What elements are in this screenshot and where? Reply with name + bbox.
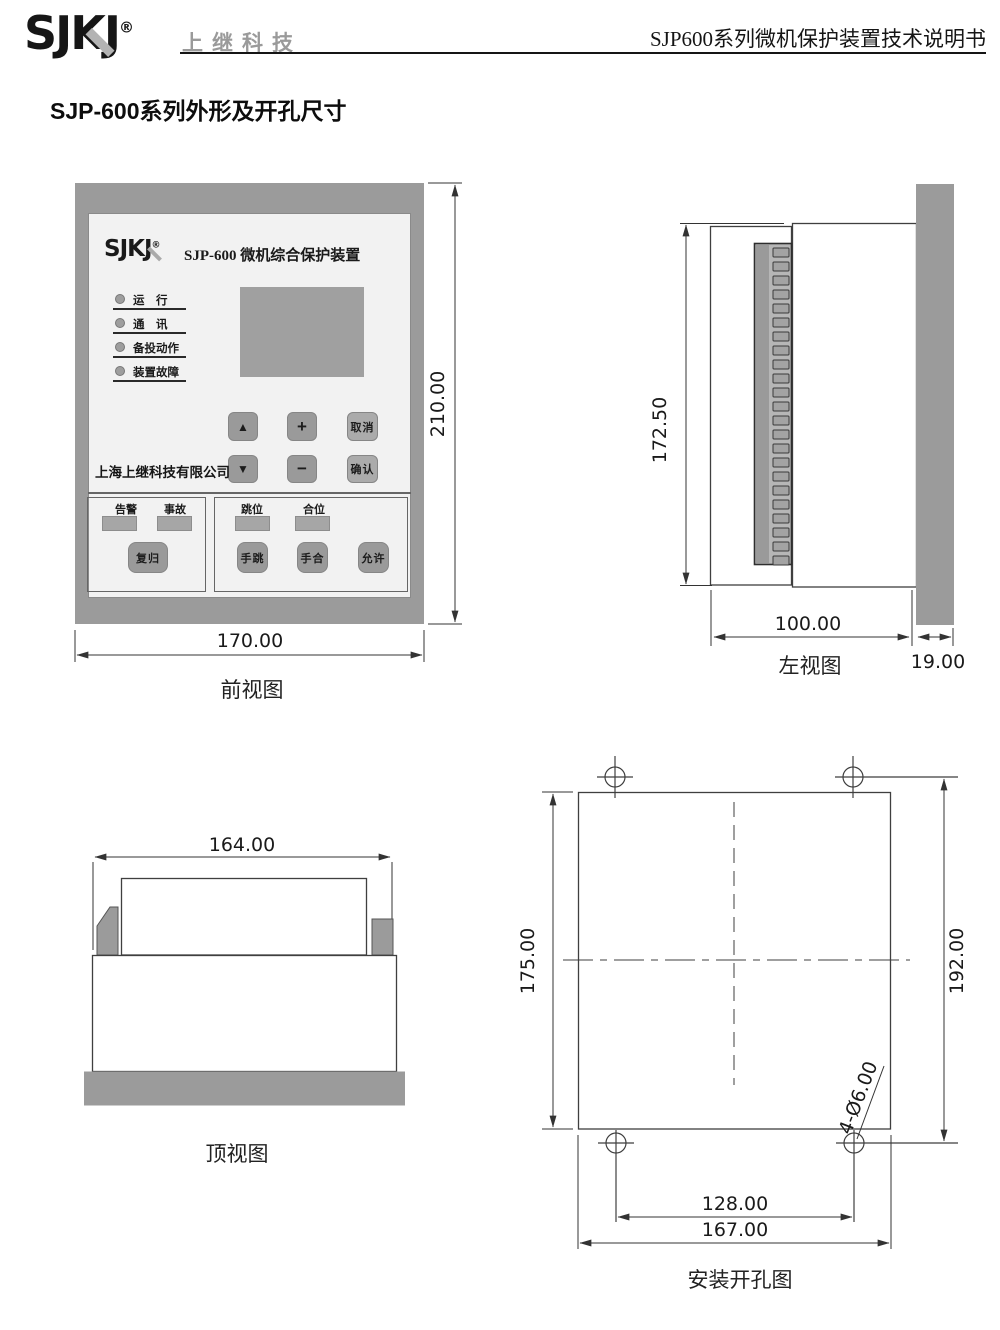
left-panel-thickness-dim: 19.00 [911, 651, 965, 673]
terminal-contacts [773, 248, 789, 565]
left-depth-dim: 100.00 [775, 613, 841, 635]
cutout-height-dim: 175.00 [517, 928, 539, 994]
terminal-contact [773, 332, 789, 341]
front-height-dim: 210.00 [427, 371, 449, 437]
terminal-contact [773, 472, 789, 481]
terminal-contact [773, 458, 789, 467]
top-view-drawing: 164.00 [84, 834, 405, 1106]
top-view-front-panel [84, 1072, 405, 1106]
left-view-drawing: 172.50 100.00 19.00 [649, 184, 965, 673]
terminal-contact [773, 444, 789, 453]
terminal-contact [773, 500, 789, 509]
front-view-caption: 前视图 [190, 674, 314, 704]
install-view-caption: 安装开孔图 [655, 1264, 825, 1294]
terminal-contact [773, 430, 789, 439]
terminal-contact [773, 402, 789, 411]
terminal-contact [773, 486, 789, 495]
hole-note: 4-Ø6.00 [834, 1058, 882, 1137]
install-view-drawing: 175.00 192.00 4-Ø6.00 128.00 167.00 [517, 756, 968, 1249]
terminal-contact [773, 388, 789, 397]
terminal-contact [773, 262, 789, 271]
left-mounting-clip [97, 907, 118, 955]
hole-spacing-h-dim: 128.00 [702, 1193, 768, 1215]
left-view-caption: 左视图 [748, 650, 872, 680]
mounting-holes [597, 756, 958, 1222]
terminal-contact [773, 248, 789, 257]
terminal-contact [773, 514, 789, 523]
front-width-dim: 170.00 [217, 630, 283, 652]
top-width-dim: 164.00 [209, 834, 275, 856]
terminal-contact [773, 416, 789, 425]
terminal-contact [773, 542, 789, 551]
terminal-contact [773, 276, 789, 285]
left-view-front-panel [916, 184, 954, 625]
terminal-strip-body [756, 245, 769, 563]
terminal-contact [773, 304, 789, 313]
terminal-contact [773, 556, 789, 565]
terminal-contact [773, 360, 789, 369]
right-mounting-clip [372, 919, 393, 955]
left-height-dim: 172.50 [649, 397, 671, 463]
top-view-caption: 顶视图 [175, 1138, 299, 1168]
hole-spacing-v-dim: 192.00 [946, 928, 968, 994]
terminal-contact [773, 290, 789, 299]
cutout-width-dim: 167.00 [702, 1219, 768, 1241]
terminal-contact [773, 528, 789, 537]
terminal-contact [773, 374, 789, 383]
terminal-contact [773, 318, 789, 327]
terminal-contact [773, 346, 789, 355]
front-view-dimensions: 210.00 170.00 [75, 183, 462, 662]
